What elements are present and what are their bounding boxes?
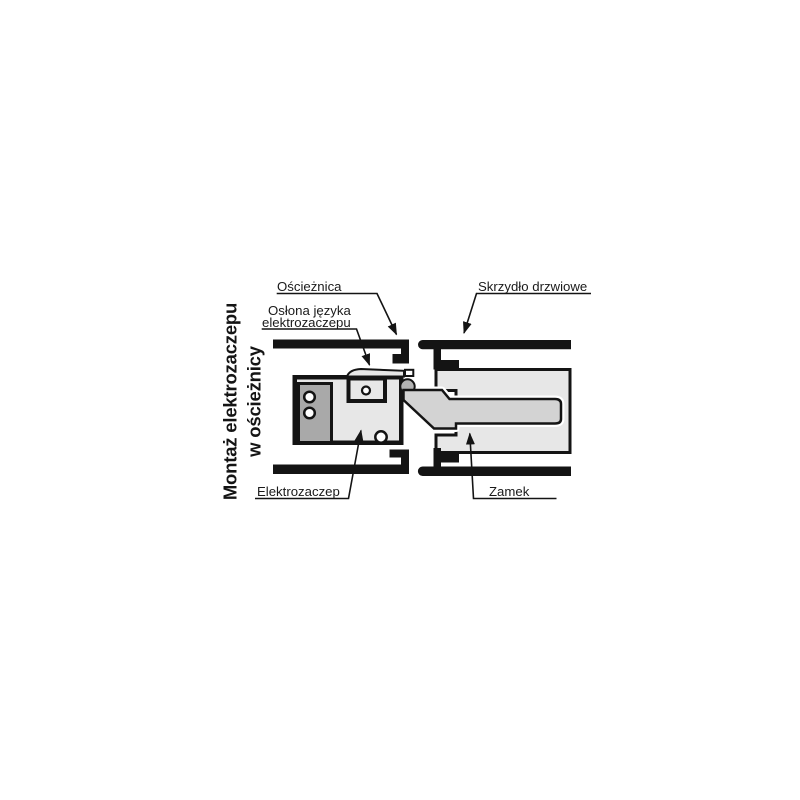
- latch-cover: [347, 369, 404, 377]
- door-leaf-profile-top: [418, 340, 571, 370]
- leader-door-leaf: [464, 294, 591, 334]
- diagram-canvas: [0, 0, 800, 800]
- mount-hole-bottom: [304, 408, 315, 419]
- callout-latch-cover-line2: elektrozaczepu: [262, 316, 351, 329]
- strike-screw-hole: [375, 431, 386, 442]
- callout-door-leaf: Skrzydło drzwiowe: [478, 280, 587, 293]
- callout-lock: Zamek: [489, 485, 529, 498]
- frame-profile-top: [273, 340, 409, 364]
- latch-cover-end: [405, 370, 413, 376]
- callout-electric-strike: Elektrozaczep: [257, 485, 340, 498]
- diagram-page: Montaż elektrozaczepu w ościeżnicy Oście…: [0, 0, 800, 800]
- diagram-title-line1: Montaż elektrozaczepu: [219, 271, 243, 531]
- pocket-hole: [362, 387, 370, 395]
- frame-profile-bottom: [273, 450, 409, 475]
- mount-hole-top: [304, 392, 315, 403]
- callout-frame: Ościeżnica: [277, 280, 342, 293]
